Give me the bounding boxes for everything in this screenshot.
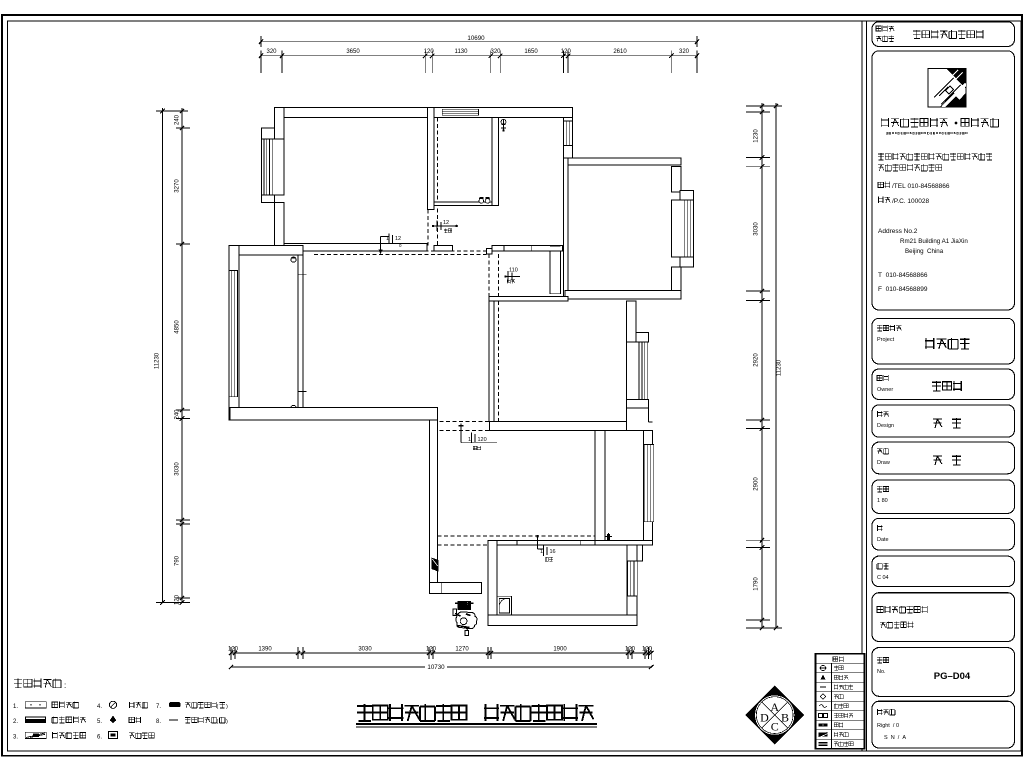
- svg-text:3030: 3030: [175, 462, 181, 476]
- svg-text:12: 12: [443, 220, 449, 226]
- svg-text:Owner: Owner: [877, 387, 893, 393]
- svg-text:12: 12: [395, 236, 401, 242]
- svg-text:320: 320: [266, 49, 277, 55]
- svg-text:2920: 2920: [754, 353, 760, 367]
- svg-text:320: 320: [490, 49, 501, 55]
- svg-text:C 04: C 04: [877, 575, 889, 581]
- svg-text:): ): [226, 704, 228, 710]
- svg-text:): ): [226, 719, 228, 725]
- svg-text:1650: 1650: [524, 49, 538, 55]
- svg-text:2.: 2.: [13, 719, 18, 725]
- svg-text:T 010-84568866: T 010-84568866: [878, 272, 928, 279]
- svg-text:Beijing China: Beijing China: [905, 248, 944, 255]
- svg-text:Design: Design: [877, 423, 894, 429]
- svg-text:1790: 1790: [754, 577, 760, 591]
- svg-text:/TEL 010-84568866: /TEL 010-84568866: [892, 183, 950, 190]
- svg-text:1390: 1390: [258, 647, 272, 653]
- svg-text:4.: 4.: [97, 704, 102, 710]
- svg-text:120: 120: [228, 647, 239, 653]
- svg-text:320: 320: [679, 49, 690, 55]
- svg-text:7.: 7.: [156, 704, 161, 710]
- svg-text:120: 120: [175, 594, 181, 605]
- svg-text:1130: 1130: [455, 49, 469, 55]
- svg-text:(: (: [217, 719, 219, 725]
- svg-text:B: B: [781, 710, 789, 724]
- svg-text:A: A: [770, 700, 779, 714]
- svg-text:4850: 4850: [175, 320, 181, 334]
- svg-text:Address No.2: Address No.2: [878, 228, 918, 235]
- svg-text:240: 240: [175, 409, 181, 420]
- svg-text:3270: 3270: [175, 179, 181, 193]
- svg-text:/P.C. 100028: /P.C. 100028: [892, 198, 929, 205]
- svg-text:F 010-84568899: F 010-84568899: [878, 286, 928, 293]
- svg-text:120: 120: [625, 647, 636, 653]
- svg-text:1270: 1270: [455, 647, 469, 653]
- svg-text:Project: Project: [877, 337, 895, 343]
- svg-text:790: 790: [175, 555, 181, 566]
- svg-text:10730: 10730: [427, 664, 445, 671]
- svg-text:8.: 8.: [156, 719, 161, 725]
- svg-text:120: 120: [426, 647, 437, 653]
- svg-text:No.: No.: [877, 669, 886, 675]
- svg-text:120: 120: [478, 437, 487, 443]
- svg-text:3650: 3650: [346, 49, 360, 55]
- svg-text:PG–D04: PG–D04: [934, 671, 971, 682]
- svg-text:2900: 2900: [754, 477, 760, 491]
- svg-text:C: C: [771, 719, 779, 733]
- svg-text:1900: 1900: [553, 647, 567, 653]
- svg-text:3030: 3030: [754, 222, 760, 236]
- svg-text:2610: 2610: [613, 49, 627, 55]
- svg-text:(: (: [217, 704, 219, 710]
- svg-text:11230: 11230: [777, 359, 783, 376]
- svg-text:10690: 10690: [467, 35, 485, 42]
- svg-text:120: 120: [642, 647, 653, 653]
- svg-text:D: D: [760, 710, 769, 724]
- svg-text:Right / 0: Right / 0: [877, 723, 899, 729]
- svg-text:120: 120: [561, 49, 572, 55]
- svg-text:240: 240: [175, 114, 181, 125]
- svg-text:11230: 11230: [155, 352, 161, 369]
- svg-text:1: 1: [468, 437, 471, 443]
- svg-text:16: 16: [550, 549, 556, 555]
- svg-text:3.: 3.: [13, 735, 18, 741]
- svg-text:5.: 5.: [97, 719, 102, 725]
- svg-text:1: 1: [540, 549, 543, 555]
- svg-text:1 80: 1 80: [877, 498, 888, 504]
- svg-text:Date: Date: [877, 537, 889, 543]
- svg-text:S N / A: S N / A: [884, 735, 906, 741]
- svg-text:Draw: Draw: [877, 460, 890, 466]
- svg-text:120: 120: [424, 49, 435, 55]
- svg-text:1230: 1230: [754, 129, 760, 143]
- svg-text:110: 110: [509, 268, 518, 274]
- svg-text::: :: [64, 681, 66, 690]
- svg-text:3030: 3030: [358, 647, 372, 653]
- svg-text:6.: 6.: [97, 735, 102, 741]
- svg-text:1.: 1.: [13, 704, 18, 710]
- svg-text:Rm21 Building A1 JiaXin: Rm21 Building A1 JiaXin: [900, 238, 968, 245]
